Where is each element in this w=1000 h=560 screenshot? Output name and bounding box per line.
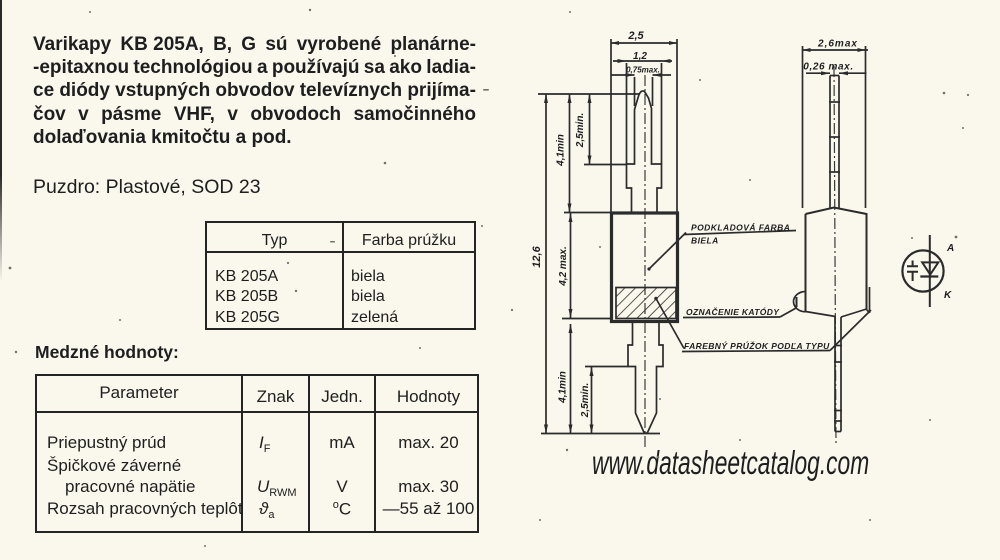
svg-text:2,5min.: 2,5min. xyxy=(580,383,591,418)
svg-text:2,5min.: 2,5min. xyxy=(575,113,586,148)
svg-text:FAREBNÝ PRÚŽOK PODĽA TYPU: FAREBNÝ PRÚŽOK PODĽA TYPU xyxy=(684,340,830,351)
svg-text:K: K xyxy=(944,290,952,301)
svg-text:A: A xyxy=(946,243,954,254)
svg-text:0,26 max.: 0,26 max. xyxy=(803,62,853,73)
svg-text:4,1min: 4,1min xyxy=(556,134,567,167)
svg-text:BIELA: BIELA xyxy=(691,236,719,246)
svg-text:4,2 max.: 4,2 max. xyxy=(558,246,569,286)
svg-text:PODKLADOVÁ FARBA: PODKLADOVÁ FARBA xyxy=(691,223,790,233)
svg-text:12,6: 12,6 xyxy=(531,245,543,267)
svg-text:2,6max: 2,6max xyxy=(817,39,858,50)
svg-text:2,5: 2,5 xyxy=(627,30,644,42)
svg-text:1,2: 1,2 xyxy=(633,51,647,62)
svg-text:OZNAČENIE KATÓDY: OZNAČENIE KATÓDY xyxy=(686,306,780,317)
svg-text:4,1min: 4,1min xyxy=(558,371,569,404)
svg-text:0,75max.: 0,75max. xyxy=(626,66,660,75)
